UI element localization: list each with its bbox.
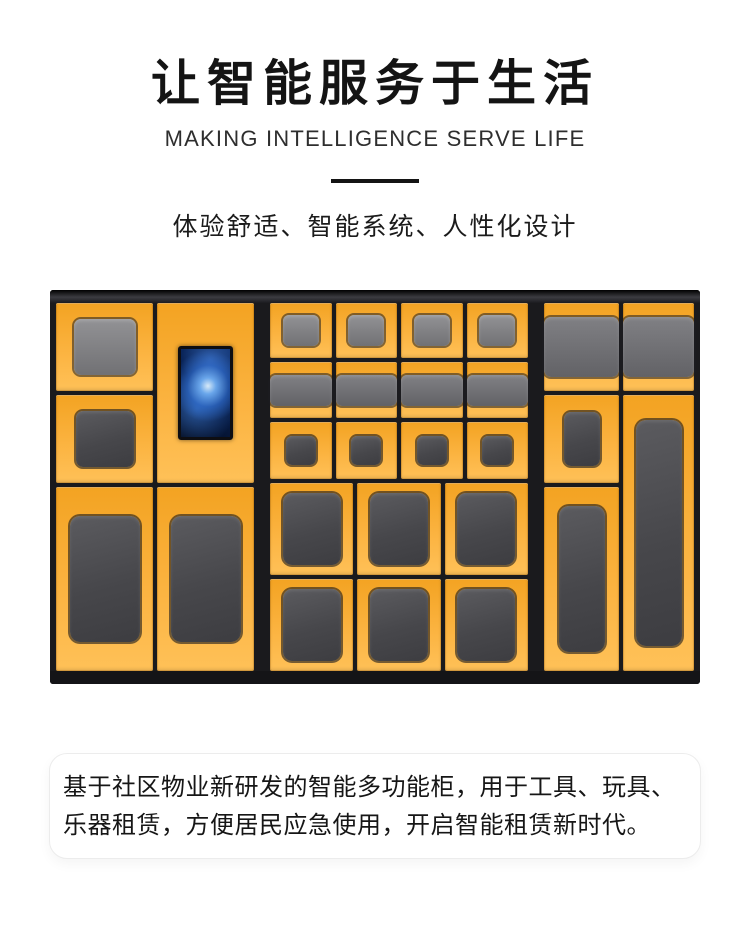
cabinet-body bbox=[50, 303, 700, 671]
door-window bbox=[171, 516, 241, 642]
door-window bbox=[348, 315, 384, 346]
locker-door bbox=[357, 579, 440, 671]
door-window bbox=[370, 589, 428, 661]
locker-door bbox=[544, 395, 619, 483]
door-window bbox=[401, 375, 463, 406]
locker-door bbox=[467, 422, 529, 479]
cabinet-divider bbox=[532, 303, 540, 671]
control-panel bbox=[157, 303, 254, 483]
locker-door bbox=[467, 362, 529, 418]
locker-door bbox=[270, 579, 353, 671]
locker-door bbox=[623, 303, 694, 391]
cabinet-column-left-1 bbox=[56, 303, 153, 671]
door-window bbox=[414, 315, 450, 346]
locker-door-large bbox=[56, 487, 153, 671]
locker-door bbox=[270, 303, 332, 358]
door-window bbox=[351, 436, 381, 465]
cabinet-column-middle bbox=[270, 303, 528, 671]
page-subtitle-english: MAKING INTELLIGENCE SERVE LIFE bbox=[0, 126, 750, 152]
door-window bbox=[270, 375, 332, 406]
cabinet-top-frame bbox=[50, 290, 700, 303]
product-description-text: 基于社区物业新研发的智能多功能柜，用于工具、玩具、乐器租赁，方便居民应急使用，开… bbox=[63, 769, 687, 845]
locker-door bbox=[544, 303, 619, 391]
locker-door bbox=[270, 483, 353, 575]
door-window bbox=[482, 436, 512, 465]
door-window bbox=[623, 317, 694, 377]
door-window bbox=[283, 493, 341, 565]
door-window bbox=[564, 412, 600, 466]
door-window bbox=[479, 315, 515, 346]
door-window bbox=[559, 506, 605, 652]
locker-door-tall bbox=[544, 487, 619, 671]
door-window bbox=[286, 436, 316, 465]
locker-door-tall bbox=[623, 395, 694, 671]
hero-section: 让智能服务于生活 MAKING INTELLIGENCE SERVE LIFE … bbox=[0, 0, 750, 243]
smart-locker-cabinet bbox=[50, 290, 700, 684]
locker-door bbox=[336, 362, 398, 418]
locker-door bbox=[401, 303, 463, 358]
cabinet-base bbox=[50, 671, 700, 684]
product-description-card: 基于社区物业新研发的智能多功能柜，用于工具、玩具、乐器租赁，方便居民应急使用，开… bbox=[49, 753, 701, 859]
locker-door bbox=[467, 303, 529, 358]
door-window bbox=[457, 589, 515, 661]
locker-door bbox=[445, 579, 528, 671]
locker-touchscreen bbox=[178, 346, 233, 440]
locker-door bbox=[56, 395, 153, 483]
feature-tagline: 体验舒适、智能系统、人性化设计 bbox=[0, 207, 750, 243]
locker-door bbox=[401, 422, 463, 479]
cabinet-column-screen bbox=[157, 303, 254, 671]
door-window bbox=[417, 436, 447, 465]
locker-door bbox=[336, 422, 398, 479]
door-window bbox=[457, 493, 515, 565]
locker-door bbox=[336, 303, 398, 358]
door-window bbox=[636, 420, 682, 646]
cabinet-column-right-2 bbox=[623, 303, 694, 671]
door-window bbox=[370, 493, 428, 565]
door-window bbox=[467, 375, 529, 406]
small-locker-grid bbox=[270, 303, 528, 479]
door-window bbox=[70, 516, 140, 642]
cabinet-column-right-1 bbox=[544, 303, 619, 671]
locker-door bbox=[357, 483, 440, 575]
title-divider-line bbox=[331, 179, 419, 183]
medium-locker-grid bbox=[270, 483, 528, 671]
door-window bbox=[74, 319, 136, 375]
door-window bbox=[76, 411, 134, 467]
door-window bbox=[544, 317, 619, 377]
door-window bbox=[283, 589, 341, 661]
door-window bbox=[336, 375, 398, 406]
locker-door bbox=[401, 362, 463, 418]
locker-door bbox=[270, 422, 332, 479]
product-image-area bbox=[50, 290, 700, 684]
locker-door bbox=[270, 362, 332, 418]
page-title: 让智能服务于生活 bbox=[0, 56, 750, 112]
door-window bbox=[283, 315, 319, 346]
locker-door bbox=[56, 303, 153, 391]
locker-door-large bbox=[157, 487, 254, 671]
locker-door bbox=[445, 483, 528, 575]
cabinet-divider bbox=[258, 303, 266, 671]
